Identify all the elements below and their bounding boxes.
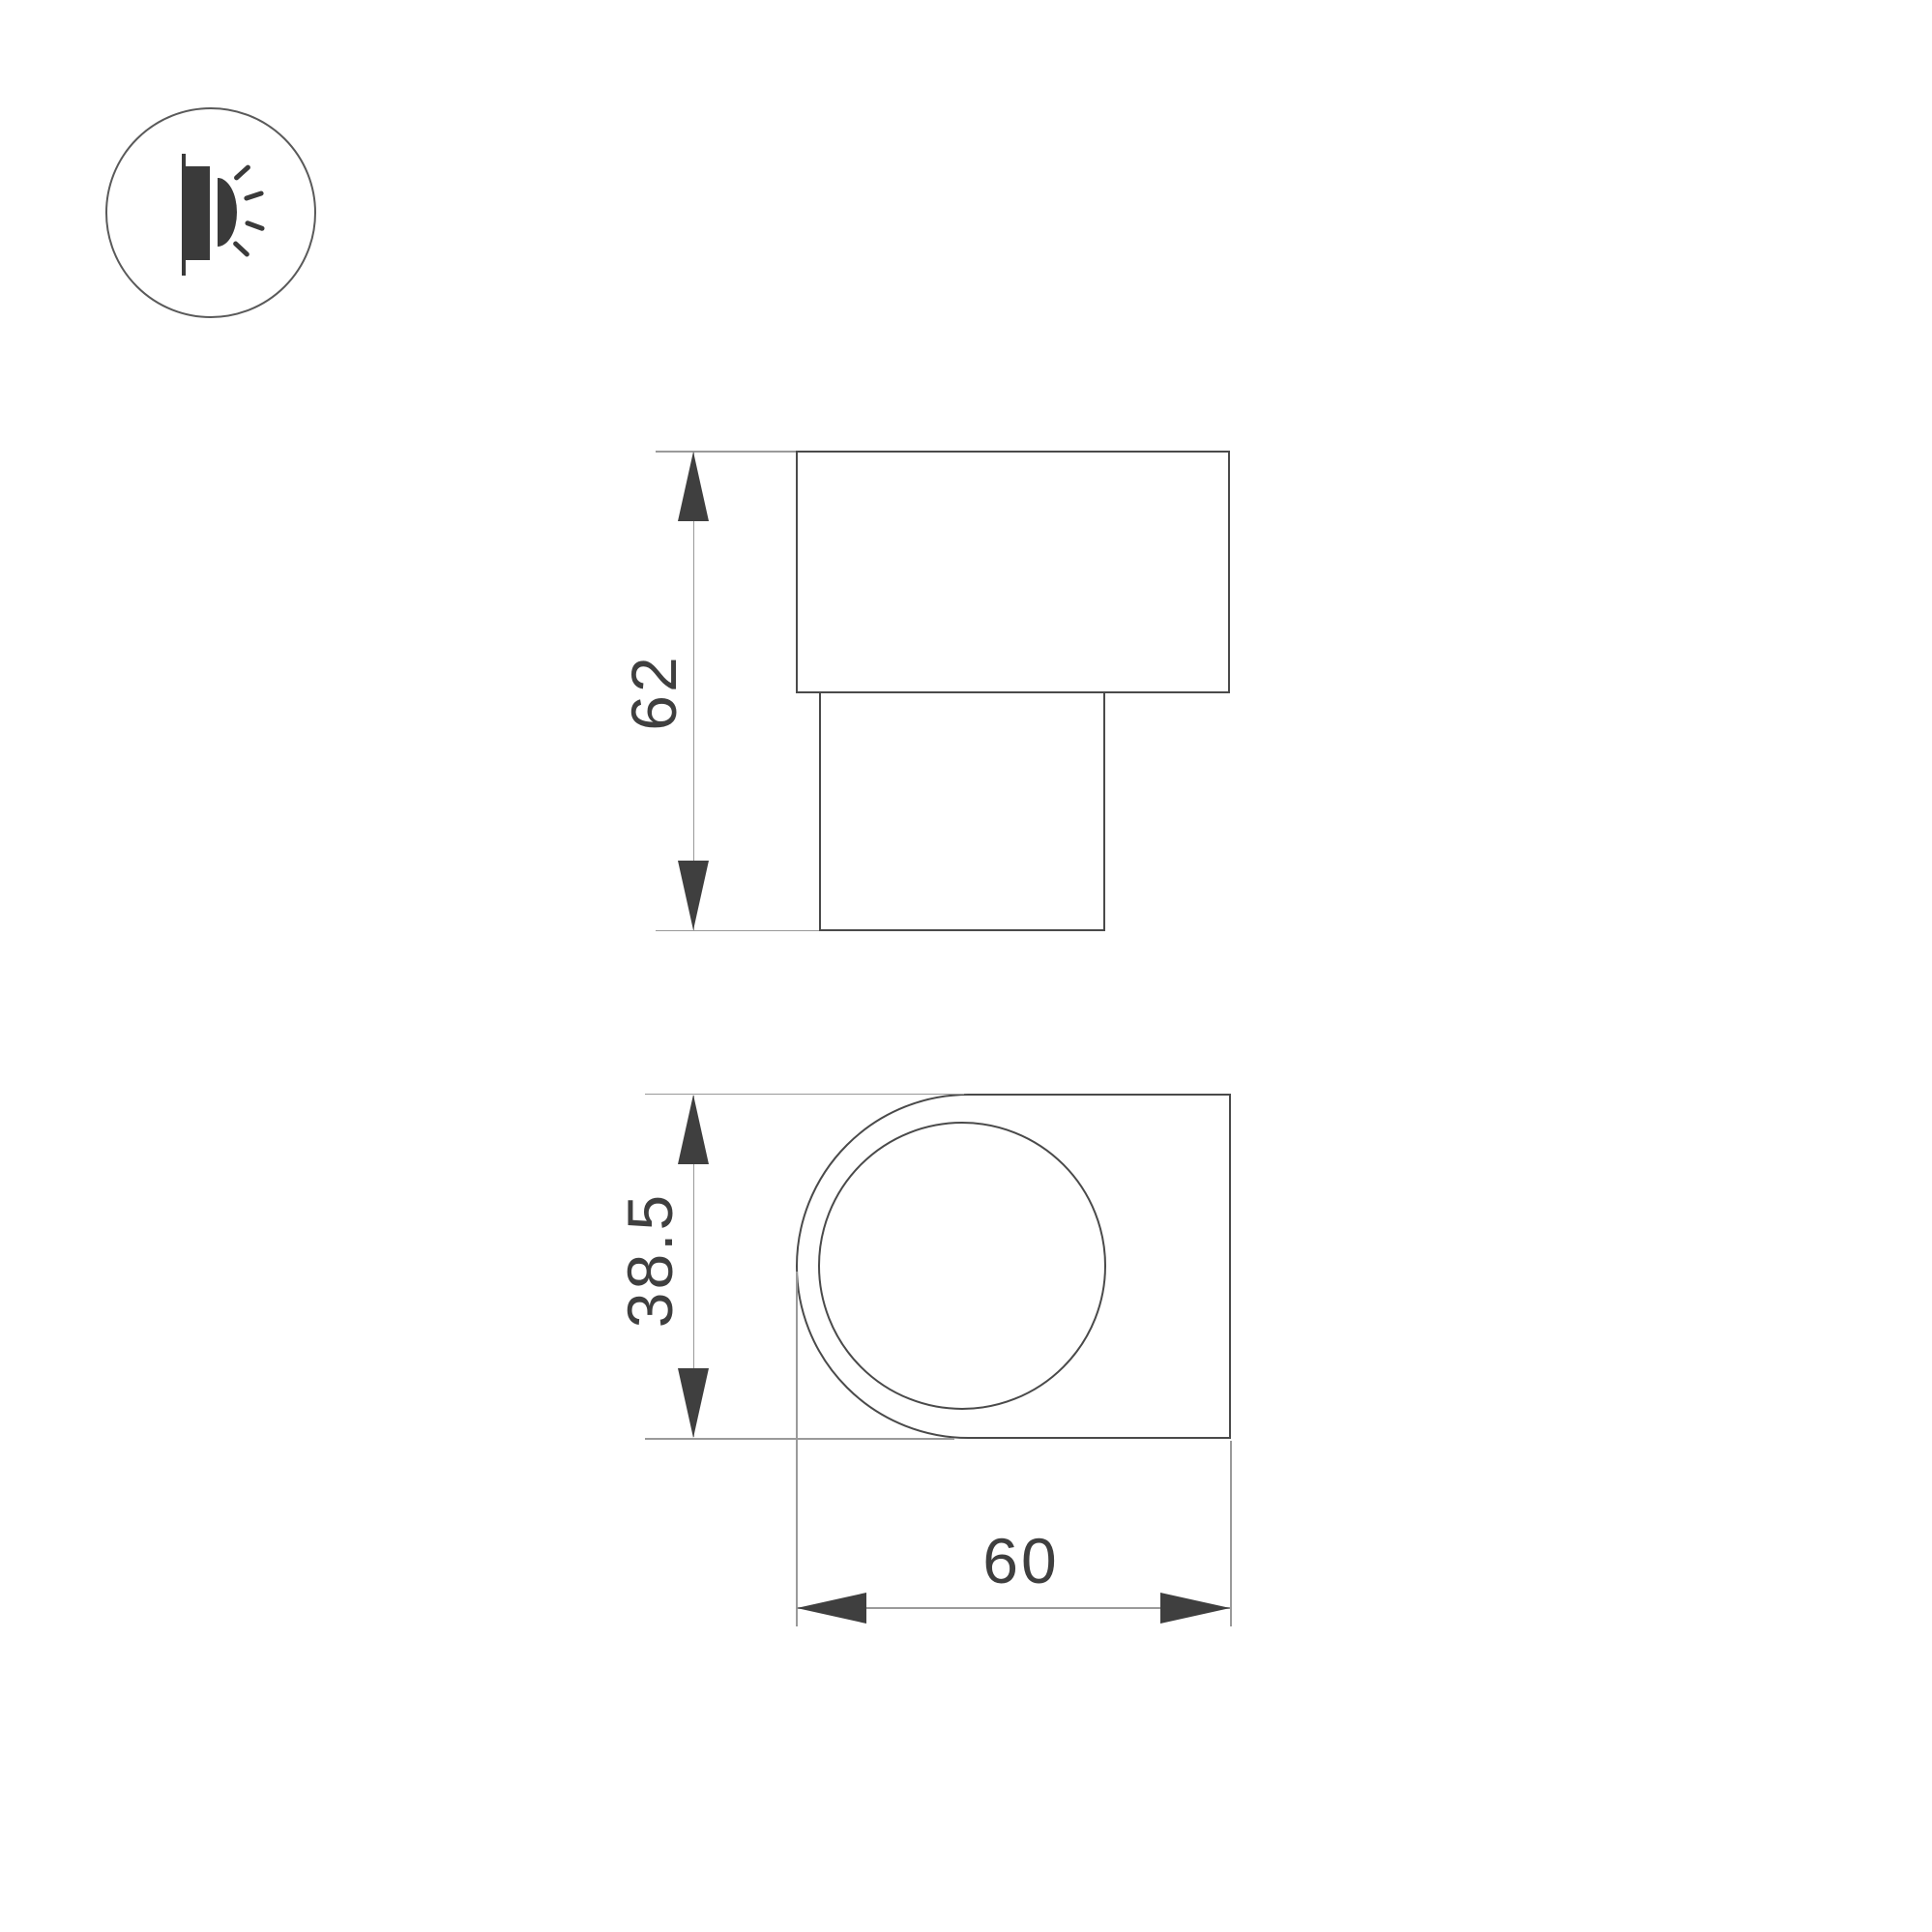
dimension-arrow-down [678,861,709,930]
lamp-body-icon [186,166,210,260]
dimension-arrow-right [1160,1593,1230,1624]
dimension-arrow-up [678,1095,709,1164]
light-ray-icon [245,220,265,232]
dimension-label-38-5: 38.5 [618,1192,682,1328]
dimension-label-60: 60 [982,1529,1059,1593]
dimension-arrow-left [797,1593,866,1624]
technical-drawing-canvas: 62 38.5 60 [0,0,1932,1932]
dimension-arrow-up [678,452,709,521]
dimension-line-62 [693,453,695,930]
dimension-arrow-down [678,1368,709,1438]
light-dome-icon [218,178,237,247]
front-view-lens-circle [818,1122,1106,1410]
light-ray-icon [233,164,251,182]
light-ray-icon [232,241,250,258]
extension-line-bottom [645,1438,954,1440]
dimension-label-62: 62 [622,654,686,730]
extension-line-top [656,451,796,453]
side-view-head-rect [796,451,1230,693]
extension-line-left [796,1272,798,1626]
side-view-body-rect [819,693,1105,931]
wall-light-icon-badge [105,107,316,318]
extension-line-right [1230,1441,1232,1626]
light-ray-icon [244,190,265,201]
